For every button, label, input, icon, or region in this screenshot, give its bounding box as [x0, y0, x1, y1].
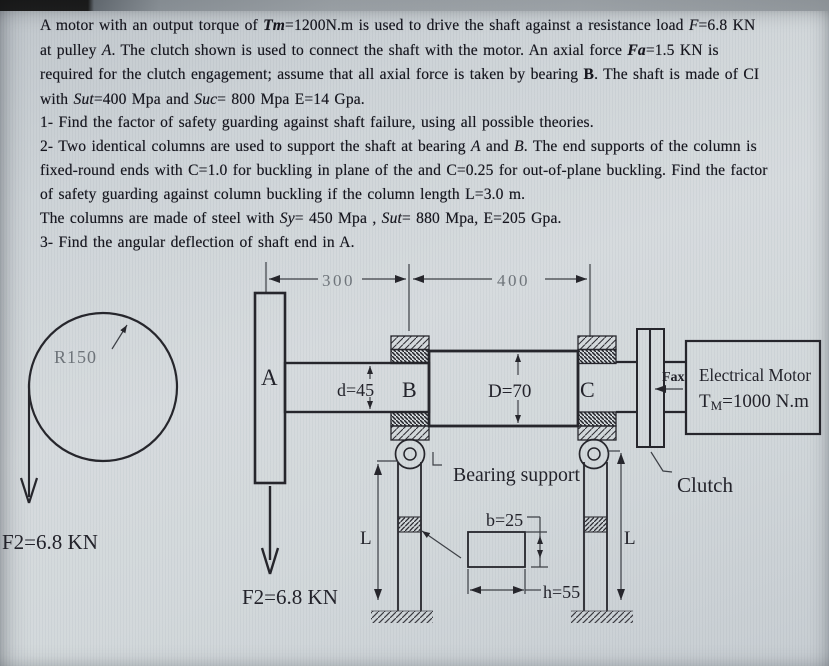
bearing-support-label: Bearing support [453, 464, 580, 486]
dimension-300-400: 300 400 [266, 262, 590, 337]
motor-name-label: Electrical Motor [699, 365, 811, 385]
shaft-large-section: D=70 [429, 351, 578, 426]
clutch-plate-left [637, 329, 650, 447]
shaft-d70-dim-label: D=70 [488, 381, 531, 402]
bearing-b: B [391, 336, 442, 469]
pulley-side-view: A F2=6.8 KN [242, 293, 338, 609]
motor-box [686, 341, 820, 434]
axial-force-label: Fax [662, 370, 685, 385]
shaft-assembly-figure: 300 400 R150 F2=6.8 KN A F2=6.8 KN [0, 0, 829, 666]
clutch-plate-right [650, 329, 664, 447]
pin-center-icon [588, 448, 600, 460]
bearing-c-label: C [580, 377, 595, 402]
ground-hatch [371, 611, 433, 623]
section-rect [468, 532, 525, 567]
column-length-label: L [624, 528, 636, 549]
section-h-label: h=55 [543, 582, 580, 602]
force-left-label: F2=6.8 KN [2, 530, 98, 554]
bearing-b-label: B [402, 377, 417, 402]
ground-hatch [571, 611, 633, 623]
force-pulley-label: F2=6.8 KN [242, 585, 338, 609]
pin-center-icon [404, 448, 416, 460]
radius-label: R150 [54, 347, 97, 367]
column-section-mark [584, 517, 607, 532]
shaft-stub [616, 362, 638, 412]
scanned-page: A motor with an output torque of Tm=1200… [0, 0, 829, 666]
column-length-label: L [360, 528, 372, 549]
column-body [398, 462, 421, 611]
column-left: L [360, 461, 433, 623]
shaft-d45-dim-label: d=45 [337, 380, 374, 400]
electrical-motor: Electrical Motor TM=1000 N.m [686, 341, 820, 434]
pulley-front-view: R150 F2=6.8 KN [2, 313, 177, 554]
column-body [584, 462, 607, 611]
motor-torque-label: TM=1000 N.m [699, 391, 809, 413]
dim-400-label: 400 [497, 271, 530, 290]
column-cross-section: b=25 h=55 [422, 510, 580, 602]
pulley-a-label: A [261, 365, 278, 390]
bearing-c: C [578, 336, 638, 469]
section-b-label: b=25 [486, 510, 523, 530]
clutch-label: Clutch [677, 473, 733, 497]
column-section-mark [398, 517, 421, 532]
pulley-circle [29, 313, 177, 461]
column-right: L [571, 451, 636, 623]
dim-300-label: 300 [322, 271, 355, 290]
